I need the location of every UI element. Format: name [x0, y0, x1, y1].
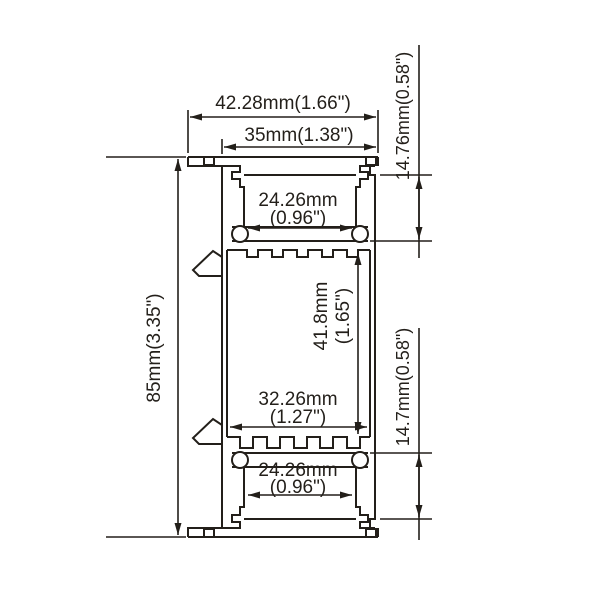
dim-cavity-height-in-label: (1.65") [333, 288, 354, 344]
dim-overall-height-label: 85mm(3.35") [144, 293, 165, 402]
left-barb-lower [193, 419, 222, 444]
led-profile-cross-section-drawing: 42.28mm(1.66") 35mm(1.38") 24.26mm (0.96… [0, 0, 600, 600]
dim-bottom-recess-label: 14.7mm(0.58") [393, 328, 413, 446]
top-clip-slot-left [222, 166, 244, 227]
dim-cavity-width-in-label: (1.27") [270, 407, 326, 428]
cavity-serration-top [227, 250, 370, 257]
top-right-notch [366, 157, 376, 165]
dim-top-recess-label: 14.76mm(0.58") [393, 52, 413, 180]
dimension-labels: 42.28mm(1.66") 35mm(1.38") 24.26mm (0.96… [144, 52, 413, 498]
top-screw-boss-right [352, 226, 368, 242]
left-barb-upper [193, 251, 222, 276]
cavity-serration-bottom [227, 437, 370, 448]
bottom-clip-slot-left [222, 467, 244, 528]
top-screw-boss-left [232, 226, 248, 242]
top-left-notch [204, 157, 214, 165]
dim-cavity-height-mm-label: 41.8mm [311, 282, 332, 351]
dim-top-channel-in-label: (0.96") [270, 208, 326, 229]
drawing-canvas: 42.28mm(1.66") 35mm(1.38") 24.26mm (0.96… [0, 0, 600, 600]
right-wall [370, 157, 378, 537]
dim-bottom-channel-in-label: (0.96") [270, 477, 326, 498]
bottom-screw-boss-right [352, 452, 368, 468]
bottom-screw-boss-left [232, 452, 248, 468]
top-boss-plate [232, 227, 368, 241]
dim-body-width-label: 35mm(1.38") [244, 125, 353, 146]
bottom-right-notch [366, 529, 376, 537]
bottom-left-notch [204, 529, 214, 537]
dim-overall-width-label: 42.28mm(1.66") [215, 93, 351, 114]
